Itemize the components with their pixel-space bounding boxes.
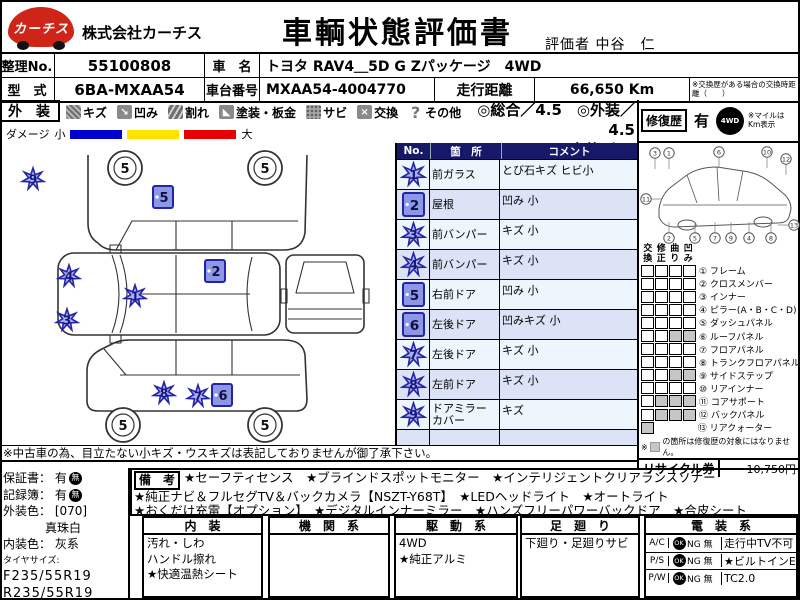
grid-cell <box>655 395 668 407</box>
legend-item: ↘凹み <box>117 104 158 121</box>
grid-header: 交換 <box>641 245 655 264</box>
frame-callout-1: 1 <box>664 148 674 169</box>
part-row: ③ インナー <box>641 290 800 303</box>
part-name: ⑤ ダッシュパネル <box>699 316 773 329</box>
svg-text:2: 2 <box>667 234 671 242</box>
grid-cell <box>669 395 682 407</box>
svg-text:3: 3 <box>409 227 418 242</box>
grid-cell <box>683 291 696 303</box>
grid-cell <box>655 291 668 303</box>
grid-cell <box>683 382 696 394</box>
car-damage-diagram: 5555952413876 <box>0 143 395 445</box>
damage-row-icon: 2 <box>397 190 430 219</box>
svg-text:11: 11 <box>642 195 650 203</box>
damage-row-comment: 凹み 小 <box>500 280 637 309</box>
legend-item-label: サビ <box>323 104 347 121</box>
part-name: ⑧ トランクフロアパネル <box>699 356 800 369</box>
frame-callout-12: 12 <box>781 154 791 175</box>
repair-history-panel: 31610121125794813 交換修正曲り凹み ① フレーム② クロスメン… <box>637 143 800 468</box>
electrical-row: A/COKNG 無走行中TV不可 <box>646 535 796 553</box>
rust-icon <box>306 105 321 119</box>
svg-text:5: 5 <box>120 162 129 177</box>
grid-cell <box>683 356 696 368</box>
repair-grid-header: 交換修正曲り凹み <box>641 245 800 264</box>
evaluator-name: 中谷 仁 <box>595 37 655 53</box>
damage-row-part: ドアミラーカバー <box>430 400 500 429</box>
interior-box: 内 装 汚れ・しわハンドル擦れ★快適温熱シート <box>142 516 263 598</box>
svg-text:2: 2 <box>409 198 419 214</box>
grid-cell <box>683 317 696 329</box>
damage-row-icon: 1 <box>397 160 430 189</box>
damage-row-part: 前ガラス <box>430 160 500 189</box>
grid-cell <box>669 317 682 329</box>
frame-callout-4: 4 <box>744 222 754 243</box>
svg-text:9: 9 <box>729 234 733 242</box>
legend-item: ◣塗装・板金 <box>219 104 296 121</box>
legend-item-label: 凹み <box>134 104 158 121</box>
svg-text:4: 4 <box>747 234 751 242</box>
svg-text:2: 2 <box>211 265 220 280</box>
damage-row-part: 左後ドア <box>430 310 500 339</box>
repair-grid-note: ※ の箇所は修復歴の対象にはなりません。 <box>641 436 800 458</box>
car-name-value: トヨタ RAV4＿5D G Zパッケージ 4WD <box>260 54 800 77</box>
tire-size-label: タイヤサイズ: <box>3 553 128 570</box>
condition-line: 下廻り・足廻りサビ <box>525 536 635 552</box>
drivetrain-title: 駆 動 系 <box>396 518 516 535</box>
col-comment: コメント <box>502 143 637 159</box>
remarks-line-1: ★セーフティセンス ★ブラインドスポットモニター ★インテリジェントクリアランス… <box>184 471 716 486</box>
damage-row-comment <box>500 430 637 445</box>
part-name: ⑫ バックパネル <box>699 408 764 421</box>
legend-item-label: キズ <box>83 104 107 121</box>
part-name: ⑬ リアクォーター <box>698 421 772 434</box>
svg-text:5: 5 <box>118 419 127 434</box>
damage-row-icon: 7 <box>397 340 430 369</box>
grid-cell <box>655 382 668 394</box>
damage-marker-9: 9 <box>22 168 43 189</box>
remarks-section: 備 考 ★セーフティセンス ★ブラインドスポットモニター ★インテリジェントクリ… <box>130 468 800 516</box>
part-name: ⑦ フロアパネル <box>699 343 764 356</box>
part-row: ⑪ コアサポート <box>641 395 800 408</box>
used-car-note: ※中古車の為、目立たない小キズ・ウスキズは表記しておりませんが御了承下さい。 <box>0 445 637 462</box>
damage-row-part: 左後ドア <box>430 340 500 369</box>
part-row: ⑤ ダッシュパネル <box>641 316 800 329</box>
frame-callout-8: 8 <box>766 222 776 243</box>
damage-row-part: 前バンパー <box>430 250 500 279</box>
damage-row: 3前バンパーキズ 小 <box>397 219 637 249</box>
exterior-color-name: 真珠白 <box>3 520 128 537</box>
interior-title: 内 装 <box>144 518 261 535</box>
damage-marker-7: 7 <box>187 385 208 406</box>
scratch-icon <box>66 105 81 119</box>
frame-callout-6: 6 <box>714 147 724 168</box>
grid-cell <box>655 317 668 329</box>
damage-row-comment: キズ 小 <box>500 370 637 399</box>
remarks-label: 備 考 <box>134 471 180 490</box>
svg-text:8: 8 <box>409 377 418 392</box>
col-no: No. <box>397 143 431 159</box>
damage-row-part: 前バンパー <box>430 220 500 249</box>
grid-cell <box>683 369 696 381</box>
part-name: ④ ピラー(A・B・C・D) <box>699 303 797 316</box>
ng-label: NG 無 <box>687 554 722 567</box>
svg-text:1: 1 <box>409 167 418 182</box>
grid-cell <box>683 304 696 316</box>
damage-row-comment: キズ 小 <box>500 220 637 249</box>
col-part: 箇 所 <box>431 143 502 159</box>
damage-row-icon: 9 <box>397 400 430 429</box>
damage-legend: キズ↘凹み割れ◣塗装・板金サビ×交換?その他 <box>66 100 461 124</box>
vehicle-info-table: 整理No. 55100808 車 名 トヨタ RAV4＿5D G Zパッケージ … <box>0 52 800 103</box>
grid-cell <box>641 265 654 277</box>
grid-cell <box>683 330 696 342</box>
electrical-note: TC2.0 <box>722 572 796 585</box>
company-name: 株式会社カーチス <box>82 22 202 43</box>
grid-cell <box>641 409 654 421</box>
damage-table-header: No. 箇 所 コメント <box>397 143 637 159</box>
part-name: ① フレーム <box>699 264 746 277</box>
electrical-item-label: P/S <box>646 556 669 566</box>
chassis-value: MXAA54-4004770 <box>260 78 435 101</box>
damage-row-comment: 凹みキズ 小 <box>500 310 637 339</box>
interior-color-row: 内装色： 灰系 <box>3 536 128 553</box>
condition-line: ★純正アルミ <box>399 552 513 568</box>
legend-item-label: 割れ <box>185 104 209 121</box>
grid-cell <box>655 278 668 290</box>
damage-row-icon: 3 <box>397 220 430 249</box>
grid-cell <box>683 265 696 277</box>
legend-item: 割れ <box>168 104 209 121</box>
part-row: ⑬ リアクォーター <box>641 421 800 434</box>
damage-row: 4前バンパーキズ 小 <box>397 249 637 279</box>
frame-callout-11: 11 <box>641 194 662 204</box>
repair-history-box: 修復歴 有 4WD ※マイルは Km表示 <box>637 100 800 143</box>
grid-cell <box>641 317 654 329</box>
damage-small-label: 小 <box>54 126 65 142</box>
part-row: ⑨ サイドステップ <box>641 369 800 382</box>
grid-cell <box>655 330 668 342</box>
damage-row: 1前ガラスとび石キズ ヒビ小 <box>397 159 637 189</box>
grid-cell <box>655 265 668 277</box>
damage-row-part: 左前ドア <box>430 370 500 399</box>
damage-row-comment: キズ <box>500 400 637 429</box>
damage-row: 5右前ドア凹み 小 <box>397 279 637 309</box>
part-name: ③ インナー <box>699 290 746 303</box>
electrical-note: ★ビルトインE <box>722 553 796 569</box>
grid-cell <box>683 409 696 421</box>
document-info-panel: 保証書： 有無 記録簿： 有無 外装色： [070] 真珠白 内装色： 灰系 タ… <box>0 468 130 598</box>
grid-cell <box>641 291 654 303</box>
grid-cell <box>641 304 654 316</box>
grid-cell <box>655 369 668 381</box>
exterior-section-tab: 外 装 <box>0 100 60 122</box>
svg-text:5: 5 <box>260 419 269 434</box>
grid-cell <box>655 343 668 355</box>
condition-line: ★快適温熱シート <box>147 567 258 583</box>
part-row: ⑥ ルーフパネル <box>641 329 800 342</box>
svg-text:8: 8 <box>769 234 773 242</box>
damage-seg-large-icon <box>184 130 236 139</box>
repair-history-label: 修復歴 <box>641 109 687 132</box>
svg-text:5: 5 <box>260 162 269 177</box>
grid-cell <box>669 369 682 381</box>
svg-text:12: 12 <box>782 155 790 163</box>
paint-icon: ◣ <box>219 105 234 119</box>
ng-label: NG 無 <box>687 537 722 550</box>
frame-callout-10: 10 <box>762 147 772 168</box>
record-book-row: 記録簿： 有無 <box>3 487 128 504</box>
engine-title: 機 関 系 <box>270 518 388 535</box>
damage-marker-8: 8 <box>153 382 174 403</box>
frame-callout-3: 3 <box>650 148 660 169</box>
damage-row: 9ドアミラーカバーキズ <box>397 399 637 429</box>
svg-text:7: 7 <box>409 347 418 362</box>
grid-cell <box>655 409 668 421</box>
rating-overall-exterior: ◎総合／4.5 ◎外装／4.5 <box>452 100 635 140</box>
awd-icon: 4WD <box>716 107 744 135</box>
grid-cell <box>669 278 682 290</box>
grid-cell <box>683 343 696 355</box>
evaluator-label: 評価者 <box>545 37 590 53</box>
damage-row: 7左後ドアキズ 小 <box>397 339 637 369</box>
damage-row: 2屋根凹み 小 <box>397 189 637 219</box>
grid-cell <box>641 369 654 381</box>
chassis-label: 車台番号 <box>205 78 260 101</box>
none-stamp-icon: 無 <box>69 472 82 485</box>
damage-row: 6左後ドア凹みキズ 小 <box>397 309 637 339</box>
gray-swatch-icon <box>650 442 661 452</box>
drivetrain-box: 駆 動 系 4WD★純正アルミ <box>394 516 518 598</box>
part-row: ⑫ バックパネル <box>641 408 800 421</box>
svg-text:7: 7 <box>713 234 717 242</box>
ref-no-label: 整理No. <box>0 54 55 77</box>
grid-cell <box>641 382 654 394</box>
grid-cell <box>641 278 654 290</box>
part-row: ② クロスメンバー <box>641 277 800 290</box>
grid-cell <box>669 330 682 342</box>
none-stamp-icon: 無 <box>69 489 82 502</box>
frame-callout-13: 13 <box>778 220 799 230</box>
interior-color-value: 灰系 <box>55 537 79 551</box>
damage-row-part: 屋根 <box>430 190 500 219</box>
grid-cell <box>669 304 682 316</box>
model-label: 型 式 <box>0 78 55 101</box>
ok-stamp-icon: OK <box>673 537 686 550</box>
svg-text:10: 10 <box>763 148 771 156</box>
grid-cell <box>641 356 654 368</box>
electrical-box: 電 装 系 A/COKNG 無走行中TV不可P/SOKNG 無★ビルトインEP/… <box>644 516 798 598</box>
damage-marker-6: 6 <box>212 384 232 406</box>
mileage-label: 走行距離 <box>435 78 535 101</box>
mileage-value: 66,650 Km <box>535 78 690 101</box>
damage-row-icon: 4 <box>397 250 430 279</box>
damage-marker-4: 4 <box>58 265 79 286</box>
engine-box: 機 関 系 <box>268 516 390 598</box>
legend-item-label: 塗装・板金 <box>236 104 296 121</box>
electrical-row: P/WOKNG 無TC2.0 <box>646 570 796 587</box>
vehicle-evaluation-sheet: カーチス 株式会社カーチス 車輌状態評価書 評価者 中谷 仁 整理No. 551… <box>0 0 800 600</box>
part-row: ⑩ リアインナー <box>641 382 800 395</box>
svg-text:5: 5 <box>159 191 168 206</box>
damage-row-comment: キズ 小 <box>500 250 637 279</box>
tire-front: F235/55R19 <box>3 569 128 586</box>
grid-cell <box>655 356 668 368</box>
part-name: ⑨ サイドステップ <box>699 369 773 382</box>
grid-cell <box>669 343 682 355</box>
svg-text:5: 5 <box>409 288 419 304</box>
mile-note: ※マイルは Km表示 <box>748 112 798 129</box>
curtis-logo-icon: カーチス <box>8 7 74 47</box>
damage-large-label: 大 <box>241 126 252 142</box>
logo-text: カーチス <box>13 18 69 37</box>
grid-header: 修正 <box>655 245 669 264</box>
damage-row-comment: キズ 小 <box>500 340 637 369</box>
part-row: ① フレーム <box>641 264 800 277</box>
electrical-note: 走行中TV不可 <box>722 535 796 551</box>
svg-text:3: 3 <box>63 314 71 328</box>
car-name-label: 車 名 <box>205 54 260 77</box>
repair-parts-grid: ① フレーム② クロスメンバー③ インナー④ ピラー(A・B・C・D)⑤ ダッシ… <box>639 264 800 434</box>
grid-cell <box>669 291 682 303</box>
page-title: 車輌状態評価書 <box>282 8 513 52</box>
damage-list-table: No. 箇 所 コメント 1前ガラスとび石キズ ヒビ小2屋根凹み 小3前バンパー… <box>395 143 637 445</box>
legend-item-label: 交換 <box>374 104 398 121</box>
damage-scale: ダメージ 小 大 <box>6 126 252 142</box>
svg-text:4: 4 <box>409 257 418 272</box>
damage-row-icon: 5 <box>397 280 430 309</box>
part-name: ② クロスメンバー <box>699 277 773 290</box>
grid-cell <box>669 409 682 421</box>
part-name: ⑩ リアインナー <box>699 382 763 395</box>
ok-stamp-icon: OK <box>673 554 686 567</box>
svg-text:6: 6 <box>717 148 721 156</box>
ref-no-value: 55100808 <box>55 54 205 77</box>
damage-seg-small-icon <box>70 130 122 139</box>
suspension-title: 足 廻 り <box>522 518 638 535</box>
part-row: ⑧ トランクフロアパネル <box>641 356 800 369</box>
grid-cell <box>641 422 654 434</box>
exterior-color-row: 外装色： [070] <box>3 503 128 520</box>
damage-seg-mid-icon <box>127 130 179 139</box>
electrical-item-label: A/C <box>646 538 669 548</box>
damage-row-part <box>430 430 500 445</box>
ok-stamp-icon: OK <box>673 572 686 585</box>
other-icon: ? <box>408 105 423 119</box>
grid-cell <box>669 382 682 394</box>
body-frame-diagram: 31610121125794813 <box>639 143 800 245</box>
grid-cell <box>669 265 682 277</box>
repair-history-value: 有 <box>694 110 709 131</box>
damage-marker-2: 2 <box>205 260 225 282</box>
part-row: ⑦ フロアパネル <box>641 343 800 356</box>
condition-line: 4WD <box>399 536 513 552</box>
grid-cell <box>641 343 654 355</box>
damage-row-icon: 8 <box>397 370 430 399</box>
suspension-box: 足 廻 り 下廻り・足廻りサビ <box>520 516 640 598</box>
damage-marker-5: 5 <box>153 186 173 208</box>
svg-text:1: 1 <box>667 149 671 157</box>
grid-cell <box>641 330 654 342</box>
model-value: 6BA-MXAA54 <box>55 78 205 101</box>
svg-text:5: 5 <box>693 234 697 242</box>
dent-icon: ↘ <box>117 105 132 119</box>
evaluator: 評価者 中谷 仁 <box>545 34 655 54</box>
electrical-row: P/SOKNG 無★ビルトインE <box>646 553 796 571</box>
warranty-row: 保証書： 有無 <box>3 470 128 487</box>
svg-text:6: 6 <box>218 389 227 404</box>
damage-row: 8左前ドアキズ 小 <box>397 369 637 399</box>
svg-text:13: 13 <box>790 221 798 229</box>
part-row: ④ ピラー(A・B・C・D) <box>641 303 800 316</box>
svg-text:8: 8 <box>160 387 168 401</box>
mileage-note: ※交換歴がある場合の交換時距離（ ） <box>690 78 800 101</box>
svg-text:6: 6 <box>409 318 419 334</box>
damage-scale-label: ダメージ <box>6 126 49 142</box>
legend-item: ×交換 <box>357 104 398 121</box>
damage-row-comment: 凹み 小 <box>500 190 637 219</box>
grid-header: 凹み <box>682 245 696 264</box>
condition-line: ハンドル擦れ <box>147 552 258 568</box>
grid-cell <box>641 395 654 407</box>
crack-icon <box>168 105 183 119</box>
svg-text:1: 1 <box>131 290 139 304</box>
exterior-color-code: [070] <box>55 504 87 518</box>
legend-item: キズ <box>66 104 107 121</box>
damage-row-comment: とび石キズ ヒビ小 <box>500 160 637 189</box>
damage-row-part: 右前ドア <box>430 280 500 309</box>
electrical-title: 電 装 系 <box>646 518 796 535</box>
grid-header: 曲り <box>668 245 682 264</box>
remarks-line-2: ★純正ナビ＆フルセグTV＆バックカメラ【NSZT-Y68T】 ★LEDヘッドライ… <box>134 490 798 505</box>
electrical-item-label: P/W <box>646 573 669 583</box>
part-name: ⑪ コアサポート <box>699 395 765 408</box>
grid-cell <box>655 304 668 316</box>
frame-callout-5: 5 <box>690 222 700 243</box>
svg-text:7: 7 <box>194 390 202 404</box>
svg-text:9: 9 <box>409 407 418 422</box>
tire-rear: R235/55R19 <box>3 586 128 600</box>
damage-row-icon <box>397 430 430 445</box>
damage-row <box>397 429 637 445</box>
replace-icon: × <box>357 105 372 119</box>
part-name: ⑥ ルーフパネル <box>699 330 763 343</box>
condition-line: 汚れ・しわ <box>147 536 258 552</box>
svg-text:4: 4 <box>65 270 73 284</box>
grid-cell <box>669 356 682 368</box>
legend-item: サビ <box>306 104 347 121</box>
grid-cell <box>683 395 696 407</box>
svg-text:9: 9 <box>29 173 37 187</box>
svg-text:3: 3 <box>653 149 657 157</box>
damage-row-icon: 6 <box>397 310 430 339</box>
ng-label: NG 無 <box>687 572 722 585</box>
grid-cell <box>683 278 696 290</box>
